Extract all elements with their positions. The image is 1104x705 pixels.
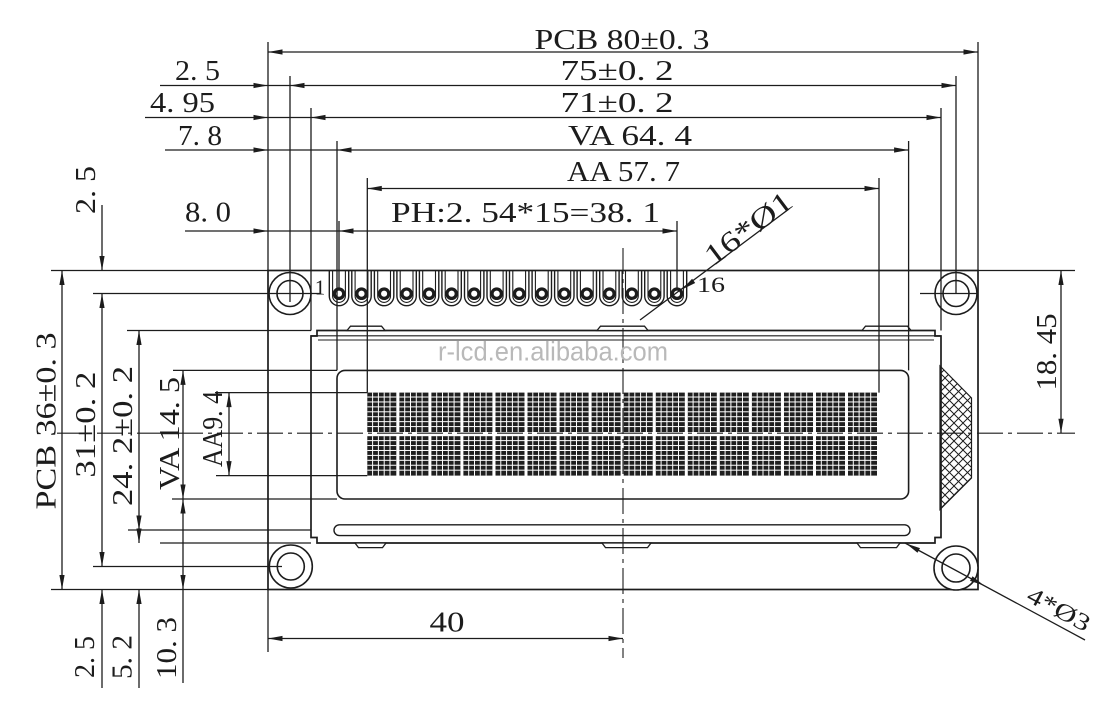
svg-text:40: 40 <box>430 606 465 638</box>
svg-text:16: 16 <box>697 272 725 297</box>
svg-text:18. 45: 18. 45 <box>1031 314 1063 391</box>
svg-text:71±0. 2: 71±0. 2 <box>561 87 674 119</box>
svg-text:AA9. 4: AA9. 4 <box>197 391 229 467</box>
svg-text:31±0. 2: 31±0. 2 <box>70 372 102 478</box>
svg-text:10. 3: 10. 3 <box>151 617 183 679</box>
svg-text:75±0. 2: 75±0. 2 <box>561 55 674 87</box>
svg-text:4*Ø3: 4*Ø3 <box>1022 583 1094 638</box>
svg-text:VA 14. 5: VA 14. 5 <box>154 377 186 490</box>
svg-text:16*Ø1: 16*Ø1 <box>698 185 799 272</box>
svg-text:r-lcd.en.alibaba.com: r-lcd.en.alibaba.com <box>438 337 668 367</box>
svg-text:7. 8: 7. 8 <box>178 120 222 152</box>
svg-text:PCB 36±0. 3: PCB 36±0. 3 <box>30 333 62 510</box>
svg-text:PCB 80±0. 3: PCB 80±0. 3 <box>535 24 710 56</box>
svg-text:2. 5: 2. 5 <box>70 166 102 214</box>
svg-text:AA 57. 7: AA 57. 7 <box>567 156 680 188</box>
svg-text:2. 5: 2. 5 <box>175 55 220 87</box>
svg-text:5. 2: 5. 2 <box>106 635 138 679</box>
svg-text:8. 0: 8. 0 <box>185 196 231 228</box>
svg-text:PH:2. 54*15=38. 1: PH:2. 54*15=38. 1 <box>391 197 660 229</box>
svg-text:4. 95: 4. 95 <box>150 87 215 119</box>
svg-text:1: 1 <box>315 276 326 300</box>
svg-text:VA 64. 4: VA 64. 4 <box>568 120 693 152</box>
svg-text:2. 5: 2. 5 <box>69 636 101 678</box>
svg-text:24. 2±0. 2: 24. 2±0. 2 <box>107 366 139 506</box>
